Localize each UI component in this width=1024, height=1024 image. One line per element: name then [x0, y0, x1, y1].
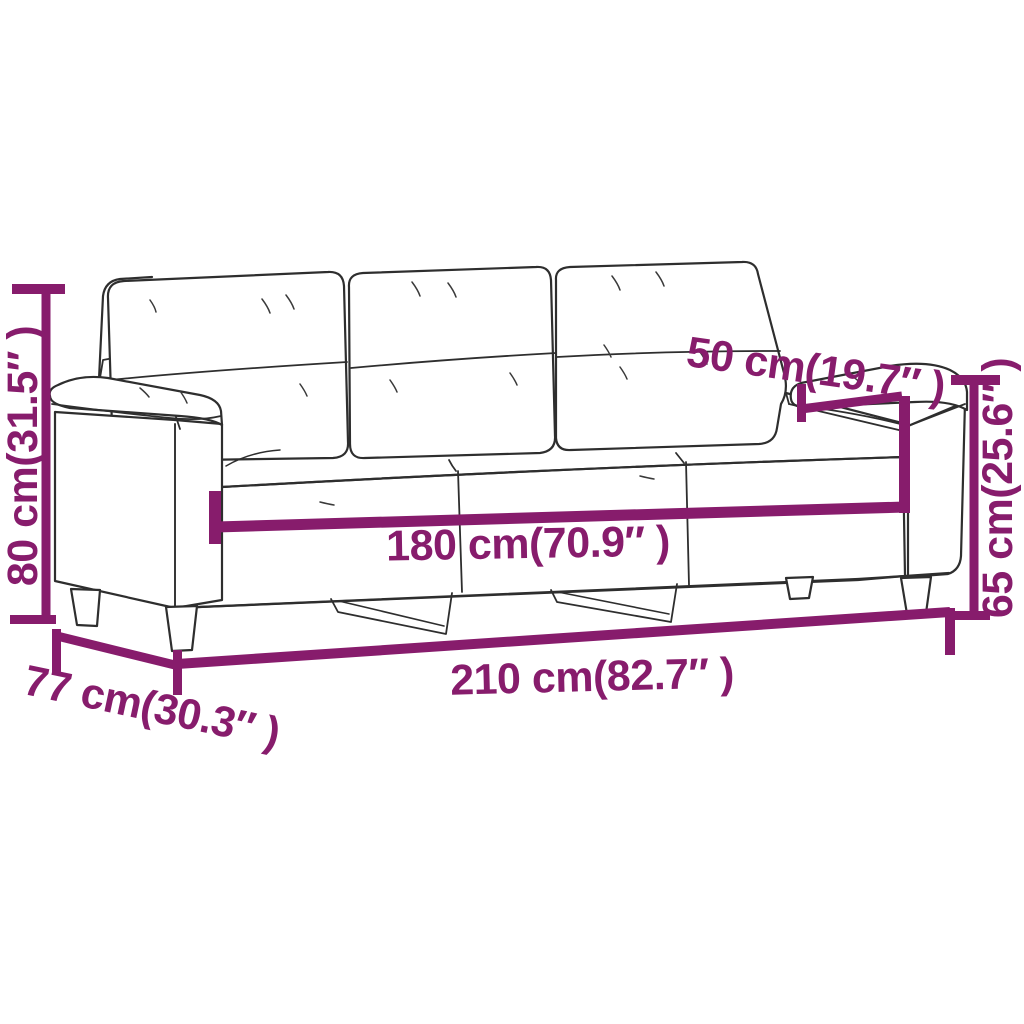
dimension-base-depth: 77 cm(30.3″ )	[19, 629, 284, 758]
dimension-line-base-depth	[57, 636, 179, 666]
dimension-cap	[209, 491, 221, 544]
dimension-cap	[12, 284, 65, 294]
dimension-cap	[899, 396, 910, 513]
dimension-label-base-depth: 77 cm(30.3″ )	[19, 656, 284, 757]
sofa-line-art	[50, 262, 967, 651]
dimension-label-overall-height: 80 cm(31.5″ )	[0, 326, 47, 586]
sofa-dimension-diagram: 80 cm(31.5″ ) 77 cm(30.3″ ) 210 cm(82.7″…	[0, 0, 1024, 1024]
dimension-label-inner-width: 180 cm(70.9″ )	[386, 518, 671, 571]
back-cushion-middle	[349, 267, 556, 458]
dimension-overall-width: 210 cm(82.7″ )	[173, 608, 955, 705]
dimension-cap	[173, 650, 182, 695]
dimension-label-arm-height: 65 cm(25.6″ )	[974, 358, 1022, 618]
dimension-label-overall-width: 210 cm(82.7″ )	[450, 649, 735, 704]
dimension-cap	[10, 615, 56, 624]
armrest-left	[50, 377, 222, 608]
sofa-dimension-diagram-page: 80 cm(31.5″ ) 77 cm(30.3″ ) 210 cm(82.7″…	[0, 0, 1024, 1024]
